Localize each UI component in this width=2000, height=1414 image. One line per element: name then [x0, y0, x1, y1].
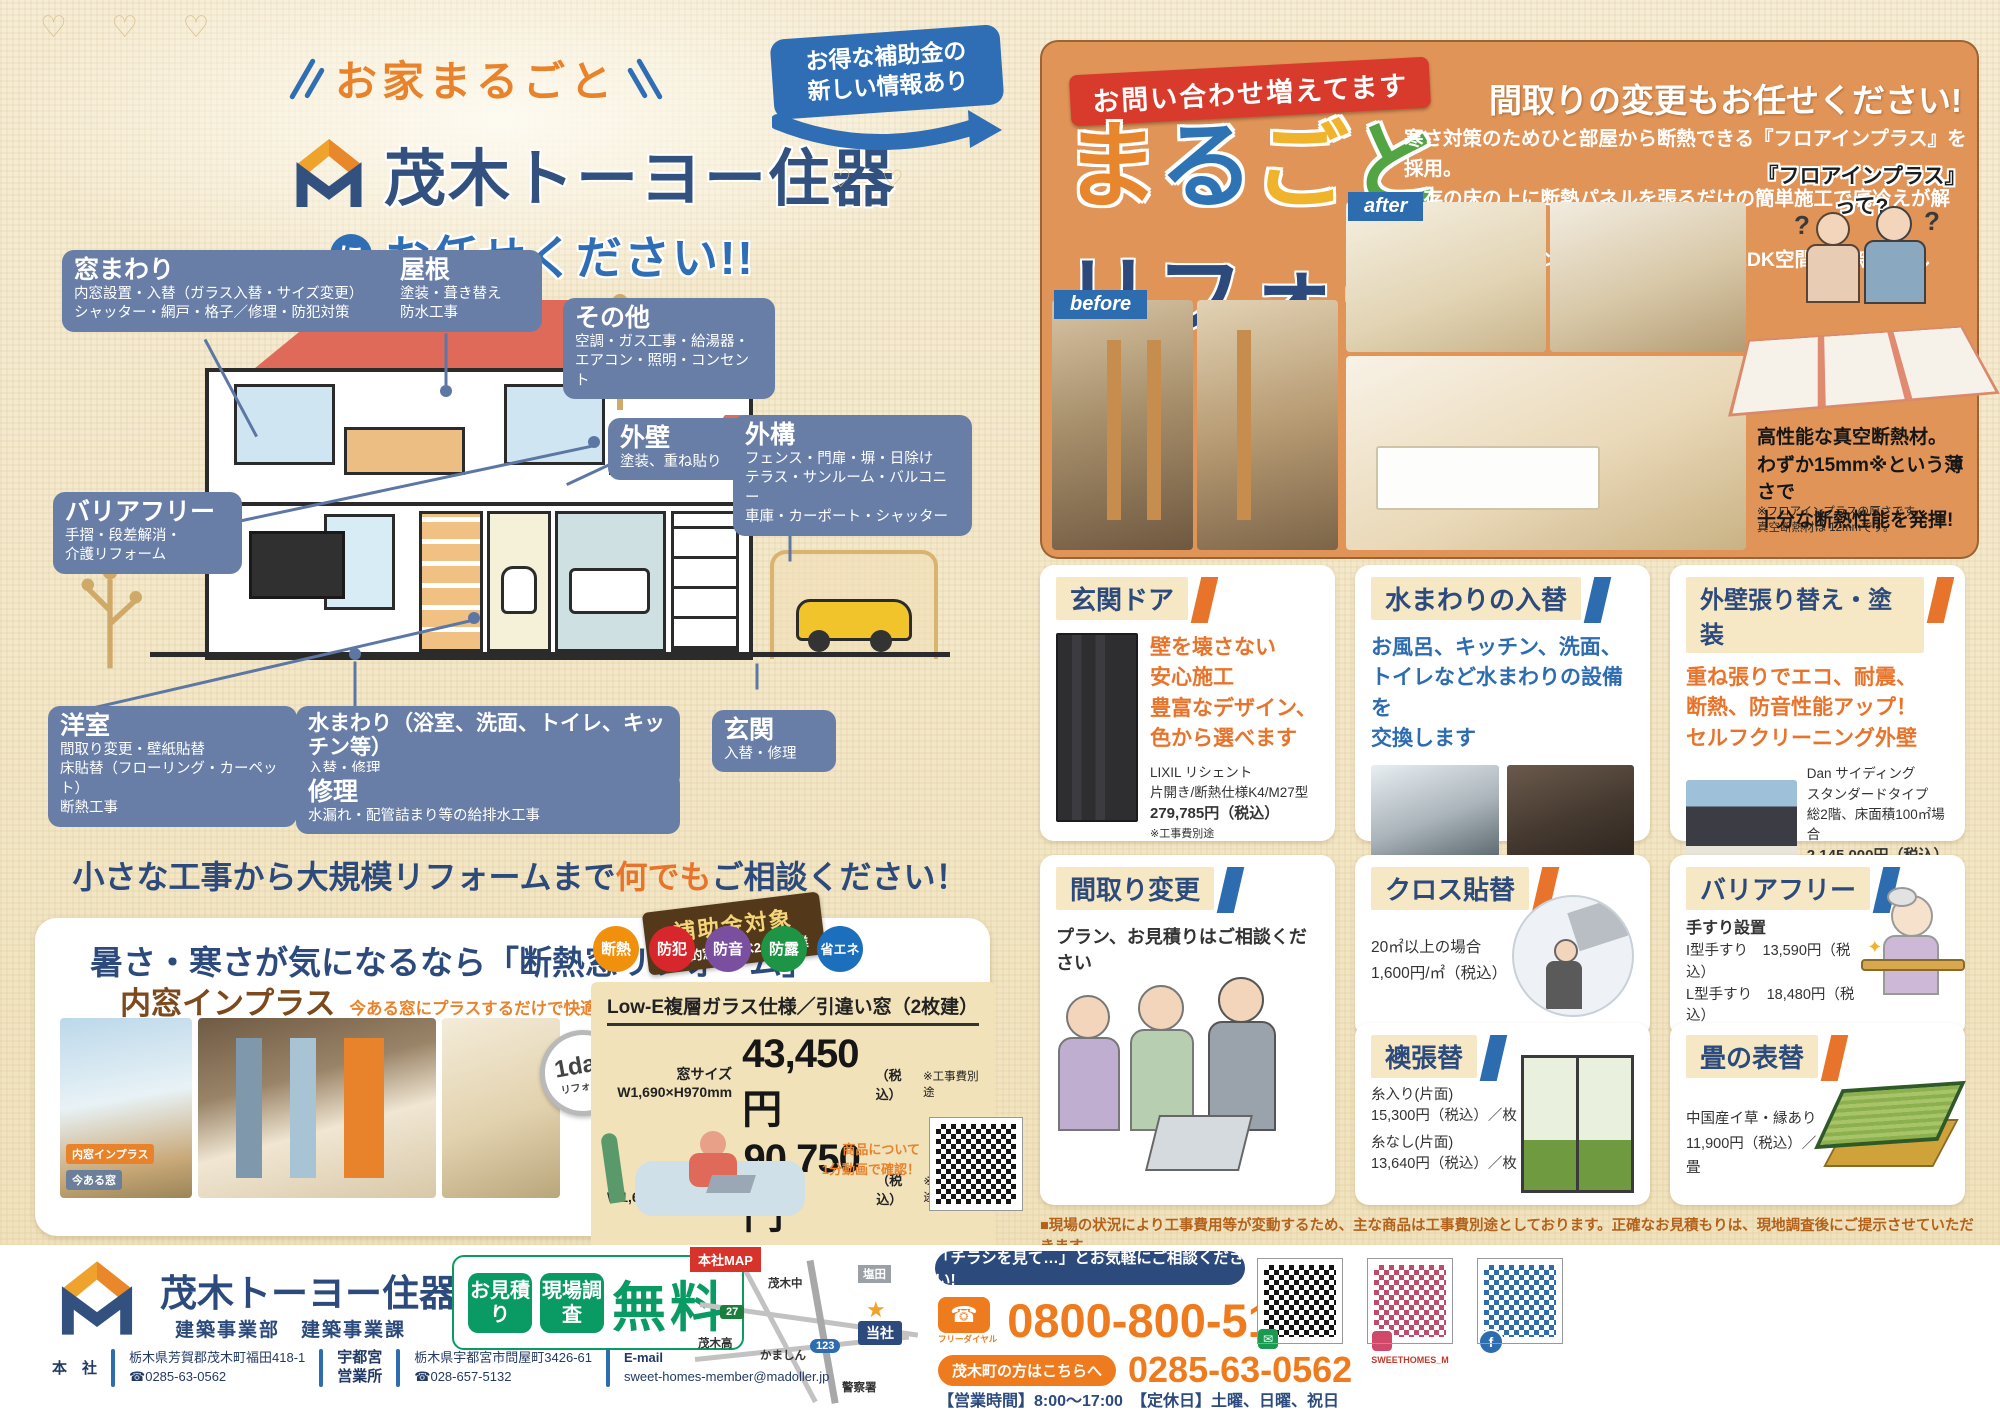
lead-line: セルフクリーニング外壁	[1686, 724, 1949, 754]
callout-line-text: 防水工事	[400, 304, 530, 324]
branch-phone[interactable]: ☎028-657-5132	[414, 1369, 511, 1384]
callout-line-text: 車庫・カーポート・シャッター	[745, 508, 960, 528]
local-phone-label: 茂木町の方はこちらへ	[938, 1355, 1116, 1386]
branch-label: 営業所	[337, 1368, 382, 1385]
video-note-line1: 商品について	[810, 1140, 920, 1160]
callout-line-text: 塗装・葺き替え	[400, 285, 530, 305]
map-star-icon: ★	[866, 1299, 886, 1321]
local-phone-row: 茂木町の方はこちらへ 0285-63-0562	[938, 1349, 1352, 1391]
footer-company-row: 茂木トーヨー住器 株式会社	[160, 1263, 490, 1317]
callout-dot	[588, 436, 600, 448]
window-photo: 内窓インプラス 今ある窓	[60, 1018, 192, 1198]
instagram-handle: SWEETHOMES_M	[1368, 1355, 1452, 1365]
company-logo-icon	[288, 135, 370, 211]
card-tab	[1191, 577, 1219, 623]
card-tab	[1217, 867, 1245, 913]
card-title: 襖張替	[1371, 1035, 1477, 1078]
tagline-emphasis: 何でも	[616, 859, 712, 895]
marugoto-char: ご	[1254, 114, 1349, 220]
callout-line-text: 間取り変更・壁紙貼替	[60, 741, 285, 761]
note-line: ※フロアインプラスの厚さです。	[1757, 504, 1977, 520]
lead-line: トイレなど水まわりの設備を	[1371, 663, 1634, 724]
lead-line: 壁を壊さない	[1150, 633, 1317, 663]
email-label: E-mail	[624, 1350, 663, 1365]
callout-other: その他 空調・ガス工事・給湯器・ エアコン・照明・コンセント	[563, 298, 775, 399]
local-phone-number[interactable]: 0285-63-0562	[1128, 1349, 1352, 1391]
card-line: 15,300円（税込）／枚	[1371, 1106, 1517, 1127]
callout-windows: 窓まわり 内窓設置・入替（ガラス入替・サイズ変更） シャッター・網戸・格子／修理…	[62, 250, 431, 332]
after-photo-3	[1346, 356, 1746, 550]
fusuma-illustration	[1521, 1055, 1634, 1193]
floor-in-plus-note: ※フロアインプラスの厚さです。 真空断熱材は 12mmです。	[1757, 504, 1977, 536]
card-line: 11,900円（税込）／畳	[1686, 1132, 1830, 1181]
card-tab	[1927, 577, 1954, 623]
callout-barrier-free: バリアフリー 手摺・段差解消・ 介護リフォーム	[53, 492, 242, 574]
photo-label-new-window: 内窓インプラス	[66, 1144, 154, 1164]
card-title: クロス貼替	[1371, 867, 1529, 910]
footer-logo-icon	[52, 1257, 142, 1344]
kitchen-photo	[1507, 765, 1635, 857]
tree-decoration	[70, 560, 150, 670]
video-note-line2: 1分動画で確認！	[810, 1160, 920, 1180]
product-name: 内窓インプラス	[120, 978, 335, 1023]
after-badge: after	[1348, 192, 1423, 221]
tagline: 小さな工事から大規模リフォームまで何でもご相談ください！	[60, 852, 980, 898]
consultation-illustration	[1060, 965, 1290, 1175]
price-tax: （税込）	[876, 1065, 919, 1103]
price-row-window: 窓サイズW1,690×H970mm 43,450円 （税込） ※工事費別途	[607, 1032, 979, 1135]
mail-icon: ✉	[1258, 1329, 1278, 1349]
route-27-badge: 27	[720, 1305, 744, 1319]
contact-bar: 「チラシを見て…」とお気軽にご相談ください!	[935, 1251, 1245, 1285]
callout-title: その他	[575, 304, 763, 333]
card-line: 20㎡以上の場合	[1371, 935, 1507, 961]
callout-title: 水まわり（浴室、洗面、トイレ、キッチン等）	[308, 712, 668, 760]
lead-line: 重ね張りでエコ、耐震、	[1686, 663, 1949, 693]
instagram-qr-block: SWEETHOMES_M	[1368, 1259, 1452, 1365]
callout-line-text: 断熱工事	[60, 799, 285, 819]
lead-line: 交換します	[1371, 724, 1634, 754]
hq-phone[interactable]: ☎0285-63-0562	[129, 1369, 226, 1384]
header-catchphrase: お家まるごと	[335, 48, 617, 109]
after-photo-1	[1346, 202, 1546, 352]
header-top-badge: お家まるごと	[300, 48, 652, 109]
feature-badge: 防露	[761, 926, 807, 972]
estimate-badge: お見積り	[468, 1273, 532, 1333]
callout-line	[354, 662, 357, 710]
map-label-police: 警察署	[842, 1379, 877, 1395]
product-row: 内窓インプラス 今ある窓にプラスするだけで快適空間	[120, 978, 630, 1023]
card-line: 糸なし(片面)	[1371, 1133, 1517, 1154]
desc-line: 高性能な真空断熱材。	[1757, 424, 1977, 452]
wallpaper-illustration	[1512, 895, 1634, 1017]
tagline-pre: 小さな工事から大規模リフォームまで	[72, 859, 615, 895]
spec-title: Low-E複層ガラス仕様／引違い窓（2枚建）	[607, 992, 979, 1026]
product-video-qr-code[interactable]	[930, 1118, 1022, 1210]
freedial-icon: ☎	[938, 1297, 990, 1333]
bathroom-photo	[1371, 765, 1499, 857]
after-photo-2	[1550, 202, 1746, 352]
thinking-couple-illustration: ? ?	[1764, 202, 1964, 302]
map-here-badge: 当社	[858, 1321, 902, 1345]
card-line: 1,600円/㎡（税込）	[1371, 961, 1507, 987]
hq-address: 栃木県芳賀郡茂木町福田418-1	[129, 1350, 305, 1365]
card-tatami: 畳の表替 中国産イ草・縁あり 11,900円（税込）／畳	[1670, 1023, 1965, 1205]
card-barrier-free: バリアフリー 手すり設置 I型手すり 13,590円（税込） L型手すり 18,…	[1670, 855, 1965, 1037]
size-value: W1,690×H970mm	[617, 1084, 732, 1100]
map-label-school: 茂木中	[768, 1275, 803, 1291]
door-photo	[1056, 633, 1138, 822]
branch-label: 宇都宮	[337, 1349, 382, 1366]
footer-company-name: 茂木トーヨー住器	[160, 1263, 456, 1317]
line-qr-block: ✉	[1258, 1259, 1342, 1349]
footer: 茂木トーヨー住器 株式会社 建築事業部 建築事業課 お見積り 現場調査 無料 本…	[0, 1245, 2000, 1414]
callout-line-text: 介護リフォーム	[65, 546, 230, 566]
lead-line: お風呂、キッチン、洗面、	[1371, 633, 1634, 663]
facebook-icon: f	[1478, 1329, 1504, 1355]
detail-line: 総2階、床面積100㎡場合	[1807, 805, 1949, 846]
before-photo-1	[1052, 300, 1193, 550]
callout-title: 玄関	[724, 716, 824, 745]
insulation-panel-illustration	[1742, 304, 1982, 414]
madori-headline: 間取りの変更もお任せください!	[1482, 74, 1962, 122]
hq-label: 本 社	[52, 1357, 97, 1378]
feature-badge: 省エネ	[817, 926, 863, 972]
map-label-shioda: 塩田	[858, 1265, 891, 1283]
card-wallpaper: クロス貼替 20㎡以上の場合 1,600円/㎡（税込）	[1355, 855, 1650, 1037]
desc-line: わずか15mm※という薄さで	[1757, 452, 1977, 507]
price-note: ※工事費別途	[923, 1068, 979, 1100]
photo-label-existing-window: 今ある窓	[66, 1170, 122, 1190]
branch-address: 栃木県宇都宮市問屋町3426-61	[414, 1350, 592, 1365]
callout-line-text: 空調・ガス工事・給湯器・	[575, 333, 763, 353]
callout-line-text: 内窓設置・入替（ガラス入替・サイズ変更）	[74, 285, 419, 305]
card-title: 畳の表替	[1686, 1035, 1818, 1078]
card-title: 水まわりの入替	[1371, 577, 1581, 620]
card-water-area: 水まわりの入替 お風呂、キッチン、洗面、 トイレなど水まわりの設備を 交換します	[1355, 565, 1650, 841]
detail-price: 279,785円（税込）	[1150, 803, 1317, 826]
card-line: 中国産イ草・縁あり	[1686, 1107, 1830, 1132]
callout-line-text: 床貼替（フローリング・カーペット）	[60, 760, 285, 799]
room-photo	[442, 1018, 560, 1198]
survey-badge: 現場調査	[540, 1273, 604, 1333]
callout-exterior-wall: 外壁 塗装、重ね貼り	[608, 418, 747, 480]
callout-dot	[349, 648, 361, 660]
callout-line-text: 塗装、重ね貼り	[620, 453, 735, 473]
callout-title: 洋室	[60, 712, 285, 741]
freedial-icon-block: ☎ フリーダイヤル	[938, 1297, 997, 1345]
callout-title: 屋根	[400, 256, 530, 285]
card-title: バリアフリー	[1686, 867, 1870, 910]
subsidy-badge: お得な補助金の 新しい情報あり	[772, 32, 1002, 169]
lead-line: 豊富なデザイン、	[1150, 694, 1317, 724]
note-line: 真空断熱材は 12mmです。	[1757, 520, 1977, 536]
flyer-page: お家まるごと 茂木トーヨー住器 に お任せください!! お得な補助金の 新しい情…	[0, 0, 2000, 1414]
card-title: 外壁張り替え・塗装	[1686, 577, 1924, 653]
callout-line-text: テラス・サンルーム・バルコニー	[745, 469, 960, 508]
divider	[606, 1349, 610, 1387]
tatami-illustration	[1830, 1071, 1949, 1181]
callout-entrance: 玄関 入替・修理	[712, 710, 836, 772]
callout-title: バリアフリー	[65, 498, 230, 527]
address-row: 本 社 栃木県芳賀郡茂木町福田418-1☎0285-63-0562 宇都宮営業所…	[52, 1349, 829, 1387]
marugoto-char: る	[1159, 114, 1254, 220]
map-title-badge: 本社MAP	[690, 1247, 761, 1272]
callout-line-text: フェンス・門扉・塀・日除け	[745, 450, 960, 470]
insulation-window-panel: 暑さ・寒さが気になるなら「断熱窓リフォーム」 補助金対象 先進的窓リノベ2025…	[35, 918, 990, 1236]
card-siding: 外壁張り替え・塗装 重ね張りでエコ、耐震、 断熱、防音性能アップ！ セルフクリー…	[1670, 565, 1965, 841]
callout-title: 外壁	[620, 424, 735, 453]
video-note: 商品について 1分動画で確認！	[810, 1140, 920, 1179]
callout-line-text: エアコン・照明・コンセント	[575, 352, 763, 391]
feature-badge: 防音	[705, 926, 751, 972]
grandma-illustration: ✦	[1869, 893, 1949, 1013]
card-title: 間取り変更	[1056, 867, 1214, 910]
detail-line: Dan サイディング	[1807, 764, 1949, 784]
card-title: 玄関ドア	[1056, 577, 1188, 620]
detail-line: LIXIL リシェント	[1150, 763, 1317, 783]
card-line: 糸入り(片面)	[1371, 1085, 1517, 1106]
card-line: 13,640円（税込）／枚	[1371, 1154, 1517, 1175]
marugoto-reform-panel: お問い合わせ増えてます まるごと リフォーム 間取りの変更もお任せください! 寒…	[1040, 40, 1979, 559]
instagram-icon	[1370, 1329, 1394, 1353]
card-tab	[1584, 577, 1612, 623]
footer-department: 建築事業部 建築事業課	[175, 1315, 406, 1342]
card-entrance-door: 玄関ドア 壁を壊さない 安心施工 豊富なデザイン、 色から選べます LIXIL …	[1040, 565, 1335, 841]
marugoto-char: ま	[1064, 114, 1159, 220]
before-photo-2	[1197, 300, 1338, 550]
card-line: 手すり設置	[1686, 917, 1869, 941]
heart-vine-decoration: ♡ ♡ ♡	[40, 10, 227, 45]
callout-western-room: 洋室 間取り変更・壁紙貼替 床貼替（フローリング・カーペット） 断熱工事	[48, 706, 297, 827]
carport	[770, 550, 938, 659]
price-value: 43,450円	[742, 1032, 872, 1135]
feature-badge: 防犯	[649, 926, 695, 972]
detail-note: ※工事費別途	[1150, 826, 1317, 843]
product-subtitle: 今ある窓にプラスするだけで快適空間	[349, 995, 629, 1019]
callout-repair: 修理 水漏れ・配管詰まり等の給排水工事	[296, 772, 680, 834]
size-label: 窓サイズ	[677, 1066, 733, 1082]
tagline-post: ご相談ください！	[712, 859, 968, 895]
heart-decoration: ♡ ♡	[830, 165, 916, 194]
card-line: I型手すり 13,590円（税込）	[1686, 941, 1869, 985]
ground-line	[150, 652, 950, 657]
first-floor	[205, 502, 753, 660]
detail-line: 片開き/断熱仕様K4/M27型	[1150, 783, 1317, 803]
callout-line	[445, 334, 448, 392]
divider	[396, 1349, 400, 1387]
facebook-qr-block: f	[1478, 1259, 1562, 1355]
callout-roof: 屋根 塗装・葺き替え 防水工事	[388, 250, 542, 332]
callout-line-text: 水漏れ・配管詰まり等の給排水工事	[308, 807, 668, 827]
callout-title: 外構	[745, 421, 960, 450]
diagram-photo	[198, 1018, 436, 1198]
callout-dot	[440, 385, 452, 397]
callout-line-text: 入替・修理	[724, 745, 824, 765]
callout-line-text: 手摺・段差解消・	[65, 527, 230, 547]
card-floor-plan: 間取り変更 プラン、お見積りはご相談ください	[1040, 855, 1335, 1205]
callout-line-text: シャッター・網戸・格子／修理・防犯対策	[74, 304, 419, 324]
feature-badge: 断熱	[593, 926, 639, 972]
lead-line: 安心施工	[1150, 663, 1317, 693]
callout-title: 窓まわり	[74, 256, 419, 285]
lead-line: 断熱、防音性能アップ！	[1686, 693, 1949, 723]
card-fusuma: 襖張替 糸入り(片面) 15,300円（税込）／枚 糸なし(片面) 13,640…	[1355, 1023, 1650, 1205]
business-hours: 【営業時間】8:00〜17:00 【定休日】土曜、日曜、祝日	[938, 1387, 1339, 1411]
callout-dot	[468, 612, 480, 624]
divider	[319, 1349, 323, 1387]
sofa-illustration	[605, 1123, 815, 1223]
feature-badges: 断熱 防犯 防音 防露 省エネ	[593, 926, 863, 972]
callout-outdoor: 外構 フェンス・門扉・塀・日除け テラス・サンルーム・バルコニー 車庫・カーポー…	[733, 415, 972, 536]
email-address[interactable]: sweet-homes-member@madoller.jp	[624, 1369, 829, 1384]
callout-title: 修理	[308, 778, 668, 807]
before-badge: before	[1054, 290, 1147, 319]
callout-line	[756, 664, 759, 690]
lead-line: 色から選べます	[1150, 724, 1317, 754]
card-line: L型手すり 18,480円（税込）	[1686, 985, 1869, 1029]
divider	[111, 1349, 115, 1387]
detail-line: スタンダードタイプ	[1807, 785, 1949, 805]
card-tab	[1480, 1035, 1508, 1081]
freedial-label: フリーダイヤル	[938, 1333, 997, 1345]
